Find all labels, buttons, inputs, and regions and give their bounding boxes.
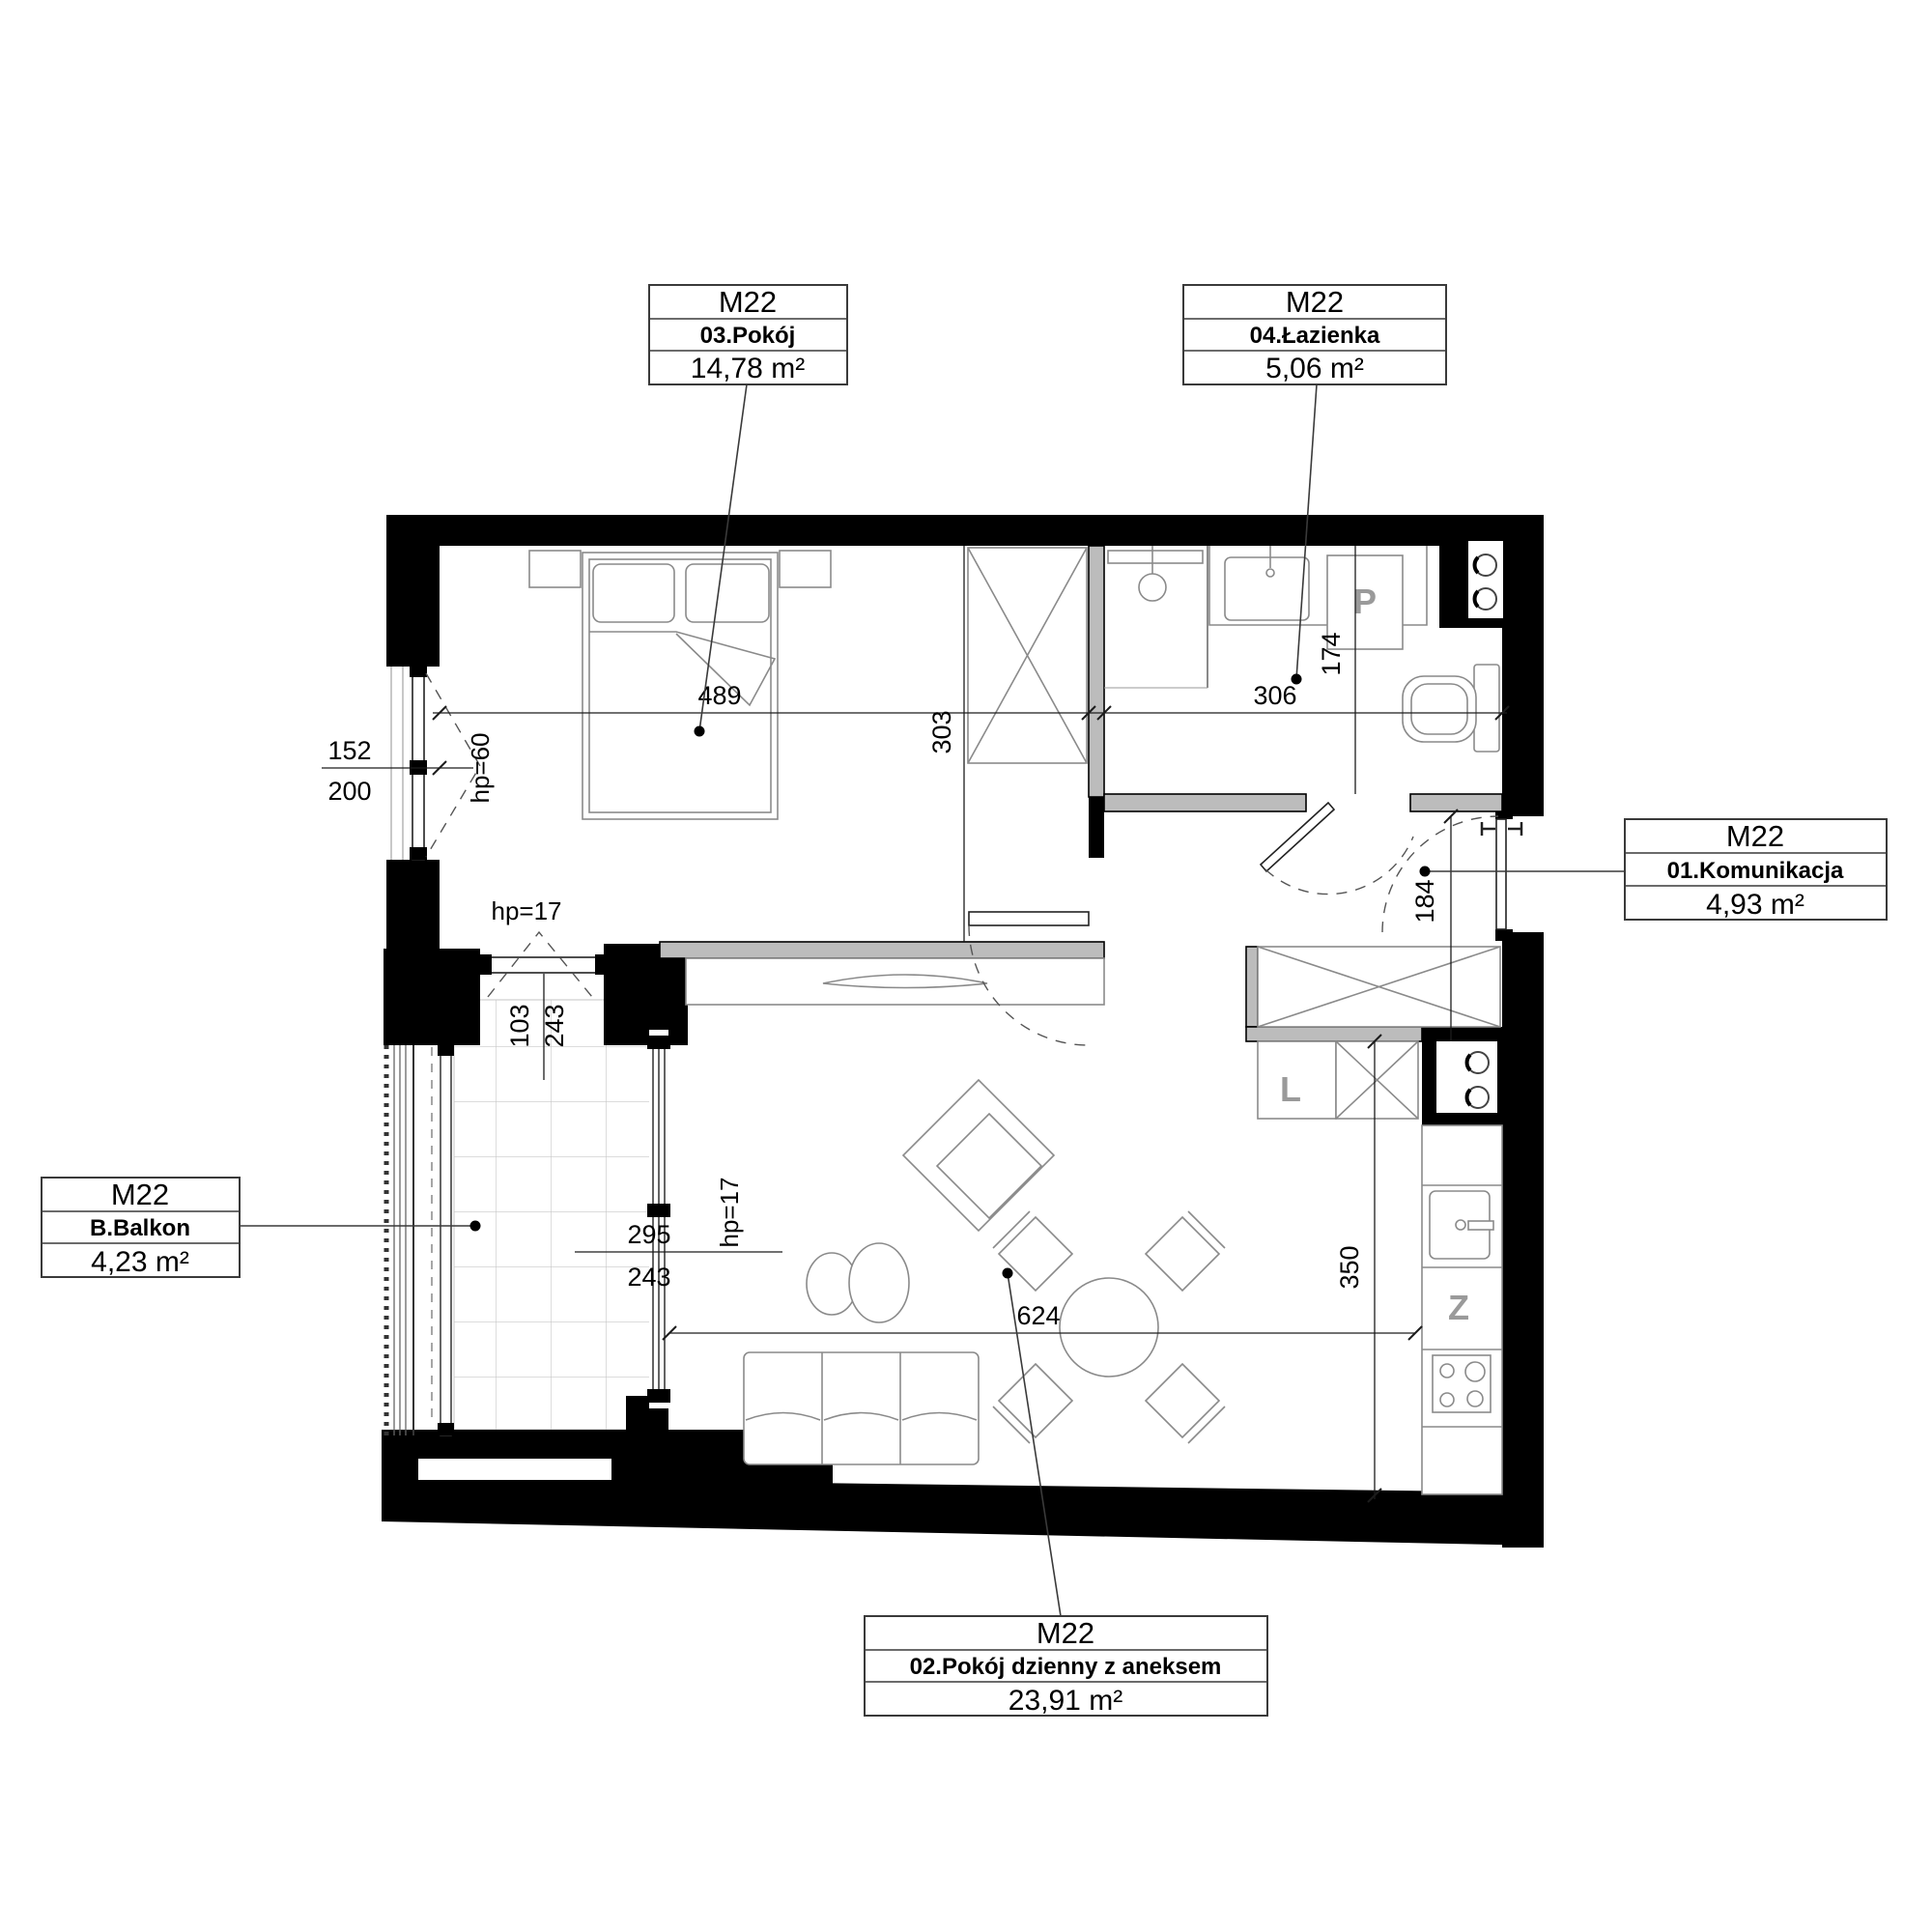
wall-bedroom-living <box>660 942 1104 958</box>
coffee-tables <box>807 1243 909 1322</box>
riser-shaft-hall <box>1436 1041 1497 1113</box>
fridge-letter: L <box>1280 1069 1301 1109</box>
toilet-tank <box>1474 665 1499 752</box>
dining-chair <box>999 1217 1072 1291</box>
dim-window-width: 152 <box>327 736 371 765</box>
bedroom-wardrobe <box>968 548 1087 763</box>
floor-plan-drawing: P L <box>0 0 1932 1932</box>
dim-hall-depth: 184 <box>1410 879 1439 923</box>
dining-chair <box>1146 1364 1219 1437</box>
balcony-railing <box>386 1043 454 1435</box>
room-area: 23,91 m² <box>1009 1685 1122 1717</box>
dim-living-width: 624 <box>1016 1301 1060 1330</box>
balcony-glass-door <box>647 1030 670 1408</box>
dim-small-window-height: 243 <box>540 1004 569 1047</box>
dining-table <box>1060 1278 1158 1377</box>
hall-wardrobe <box>1258 947 1500 1027</box>
leader-dot <box>695 726 705 737</box>
unit-code: M22 <box>1286 285 1344 319</box>
hall-cabinet <box>1336 1041 1418 1119</box>
wall-bathroom-hall-left <box>1104 794 1306 811</box>
leader-dot <box>470 1221 481 1232</box>
room-name: 04.Łazienka <box>1250 323 1380 349</box>
dim-bathroom-depth: 174 <box>1317 632 1346 675</box>
dining-chair <box>1146 1217 1219 1291</box>
balcony-tiled-floor <box>454 1000 653 1430</box>
bedroom-furniture <box>529 548 1087 819</box>
nightstand-right <box>780 551 831 587</box>
washing-machine-letter: P <box>1353 582 1377 621</box>
room-label-balcony: M22 B.Balkon 4,23 m² <box>42 1178 240 1278</box>
living-room-furniture <box>686 958 1225 1464</box>
unit-code: M22 <box>719 285 777 319</box>
room-name: 01.Komunikacja <box>1667 858 1844 884</box>
unit-code: M22 <box>111 1178 169 1211</box>
shower-head-icon <box>1139 574 1166 601</box>
wardrobe-end-wall <box>1246 947 1258 1027</box>
room-area: 4,23 m² <box>91 1246 189 1278</box>
floor-plan-canvas: P L <box>0 0 1932 1932</box>
dim-balcony-door-height: 243 <box>627 1263 670 1292</box>
room-area: 14,78 m² <box>691 353 805 384</box>
washbasin <box>1225 546 1309 620</box>
room-label-hall: M22 01.Komunikacja 4,93 m² <box>1625 819 1887 921</box>
room-label-bedroom: M22 03.Pokój 14,78 m² <box>649 285 847 384</box>
kitchen-counter: Z <box>1422 1125 1502 1494</box>
dim-bathroom-width: 306 <box>1253 681 1296 710</box>
room-area: 5,06 m² <box>1265 353 1364 384</box>
dim-kitchen-run: 350 <box>1335 1245 1364 1289</box>
sideboard <box>686 958 1104 1005</box>
room-name: B.Balkon <box>90 1215 190 1241</box>
double-bed <box>582 553 778 819</box>
sofa <box>744 1352 979 1464</box>
leader-dot <box>1003 1268 1013 1279</box>
dishwasher-letter: Z <box>1448 1288 1469 1327</box>
bathroom-door <box>1261 803 1413 895</box>
room-label-bathroom: M22 04.Łazienka 5,06 m² <box>1183 285 1446 384</box>
shower <box>1104 546 1207 688</box>
dim-balcony-door-sill: hp=17 <box>715 1177 744 1247</box>
unit-code: M22 <box>1726 819 1784 853</box>
room-name: 02.Pokój dzienny z aneksem <box>910 1654 1222 1680</box>
fridge: L <box>1258 1041 1336 1119</box>
dim-window-height: 200 <box>327 777 371 806</box>
dim-balcony-door-width: 295 <box>627 1220 670 1249</box>
nightstand-left <box>529 551 581 587</box>
dining-chair <box>999 1364 1072 1437</box>
faucet-icon <box>1456 1220 1465 1230</box>
balcony-wall-opening <box>418 1459 611 1480</box>
pillow <box>686 564 769 622</box>
dim-small-window-width: 103 <box>505 1004 534 1047</box>
faucet-icon <box>1266 569 1274 577</box>
wall-bedroom-bathroom <box>1089 546 1104 797</box>
toilet <box>1403 665 1499 752</box>
pillow <box>593 564 674 622</box>
room-name: 03.Pokój <box>700 323 796 349</box>
entrance-door <box>1382 816 1521 932</box>
riser-shaft-top <box>1468 541 1503 618</box>
leader-dot <box>1420 867 1431 877</box>
wall-bathroom-hall-right <box>1410 794 1502 811</box>
room-area: 4,93 m² <box>1706 889 1804 921</box>
stove <box>1433 1355 1491 1412</box>
unit-code: M22 <box>1037 1616 1094 1650</box>
armchair <box>903 1080 1054 1231</box>
leader-dot <box>1292 674 1302 685</box>
dim-small-window-sill: hp=17 <box>491 896 561 925</box>
kitchen-sink <box>1430 1191 1493 1259</box>
hall-kitchen-stub-wall <box>1246 1027 1422 1041</box>
dim-bedroom-depth: 303 <box>927 710 956 753</box>
dim-window-sill-height: hp=60 <box>466 732 495 803</box>
room-label-living: M22 02.Pokój dzienny z aneksem 23,91 m² <box>865 1616 1267 1717</box>
